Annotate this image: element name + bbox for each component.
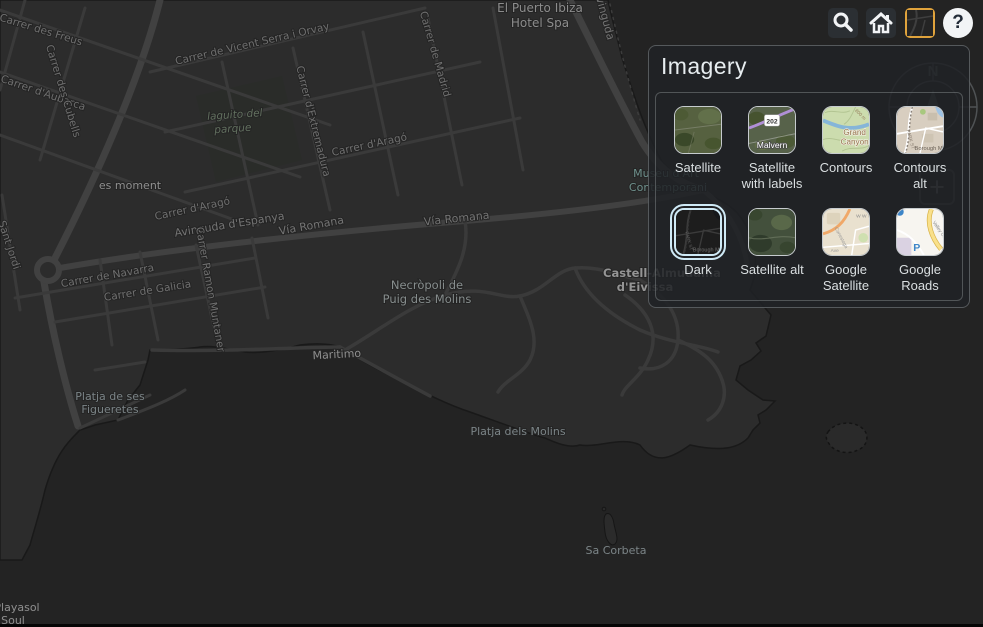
svg-text:Ave: Ave <box>831 248 839 254</box>
svg-text:W W: W W <box>856 214 867 220</box>
imagery-option-contours[interactable]: Grand Canyon 800 m Contours <box>809 106 883 198</box>
svg-text:Borough M: Borough M <box>915 146 943 152</box>
map-label: Sa Corbeta <box>586 544 647 557</box>
map-app-window: El Puerto Ibiza Hotel Spa Avinguda Carre… <box>0 0 983 627</box>
map-label: Maritimo <box>312 347 362 363</box>
imagery-panel-title: Imagery <box>661 53 747 80</box>
map-label: Playasol <box>0 601 40 614</box>
imagery-option-contours-alt[interactable]: PARK ST Borough M Contoursalt <box>883 106 957 198</box>
imagery-toggle-button[interactable] <box>905 8 935 38</box>
imagery-options-grid: Satellite 202 Malvern Satellitewith lab <box>655 92 963 301</box>
search-icon <box>828 8 858 38</box>
google-satellite-thumbnail: W W Conestoga Ave <box>822 208 870 256</box>
svg-text:202: 202 <box>766 118 777 125</box>
svg-text:Borough M: Borough M <box>693 247 720 253</box>
svg-text:Grand: Grand <box>843 128 866 137</box>
svg-text:Malvern: Malvern <box>757 140 788 150</box>
imagery-option-google-satellite[interactable]: W W Conestoga Ave GoogleSatellite <box>809 208 883 300</box>
home-icon <box>866 8 896 38</box>
imagery-option-satellite-alt[interactable]: Satellite alt <box>735 208 809 300</box>
imagery-option-dark[interactable]: PARK ST Borough M Dark <box>661 208 735 300</box>
satellite-with-labels-thumbnail: 202 Malvern <box>748 106 796 154</box>
imagery-option-google-roads[interactable]: Valley Creek Blvd P GoogleRoads <box>883 208 957 300</box>
map-label: Puig des Molins <box>383 292 472 306</box>
map-label: El Puerto Ibiza <box>497 1 583 15</box>
map-label: Necròpoli de <box>391 278 463 292</box>
dark-thumbnail: PARK ST Borough M <box>674 208 722 256</box>
map-label: Hotel Spa <box>511 16 569 30</box>
imagery-panel: Imagery Satellite <box>648 45 970 308</box>
map-label: Platja de ses <box>75 390 145 403</box>
help-button[interactable]: ? <box>943 8 973 38</box>
search-button[interactable] <box>828 8 858 38</box>
imagery-option-satellite[interactable]: Satellite <box>661 106 735 198</box>
map-label: es moment <box>99 179 162 192</box>
contours-alt-thumbnail: PARK ST Borough M <box>896 106 944 154</box>
map-label: Platja dels Molins <box>470 425 565 438</box>
imagery-option-satellite-with-labels[interactable]: 202 Malvern Satellitewith labels <box>735 106 809 198</box>
contours-thumbnail: Grand Canyon 800 m <box>822 106 870 154</box>
home-button[interactable] <box>866 8 896 38</box>
map-label: Figueretes <box>81 403 138 416</box>
islet-dot <box>602 507 606 511</box>
satellite-alt-thumbnail <box>748 208 796 256</box>
svg-text:P: P <box>913 242 920 254</box>
islet-dashed <box>826 423 867 452</box>
svg-text:Canyon: Canyon <box>841 137 869 146</box>
google-roads-thumbnail: Valley Creek Blvd P <box>896 208 944 256</box>
basemap-thumbnail-icon <box>907 10 933 36</box>
satellite-thumbnail <box>674 106 722 154</box>
